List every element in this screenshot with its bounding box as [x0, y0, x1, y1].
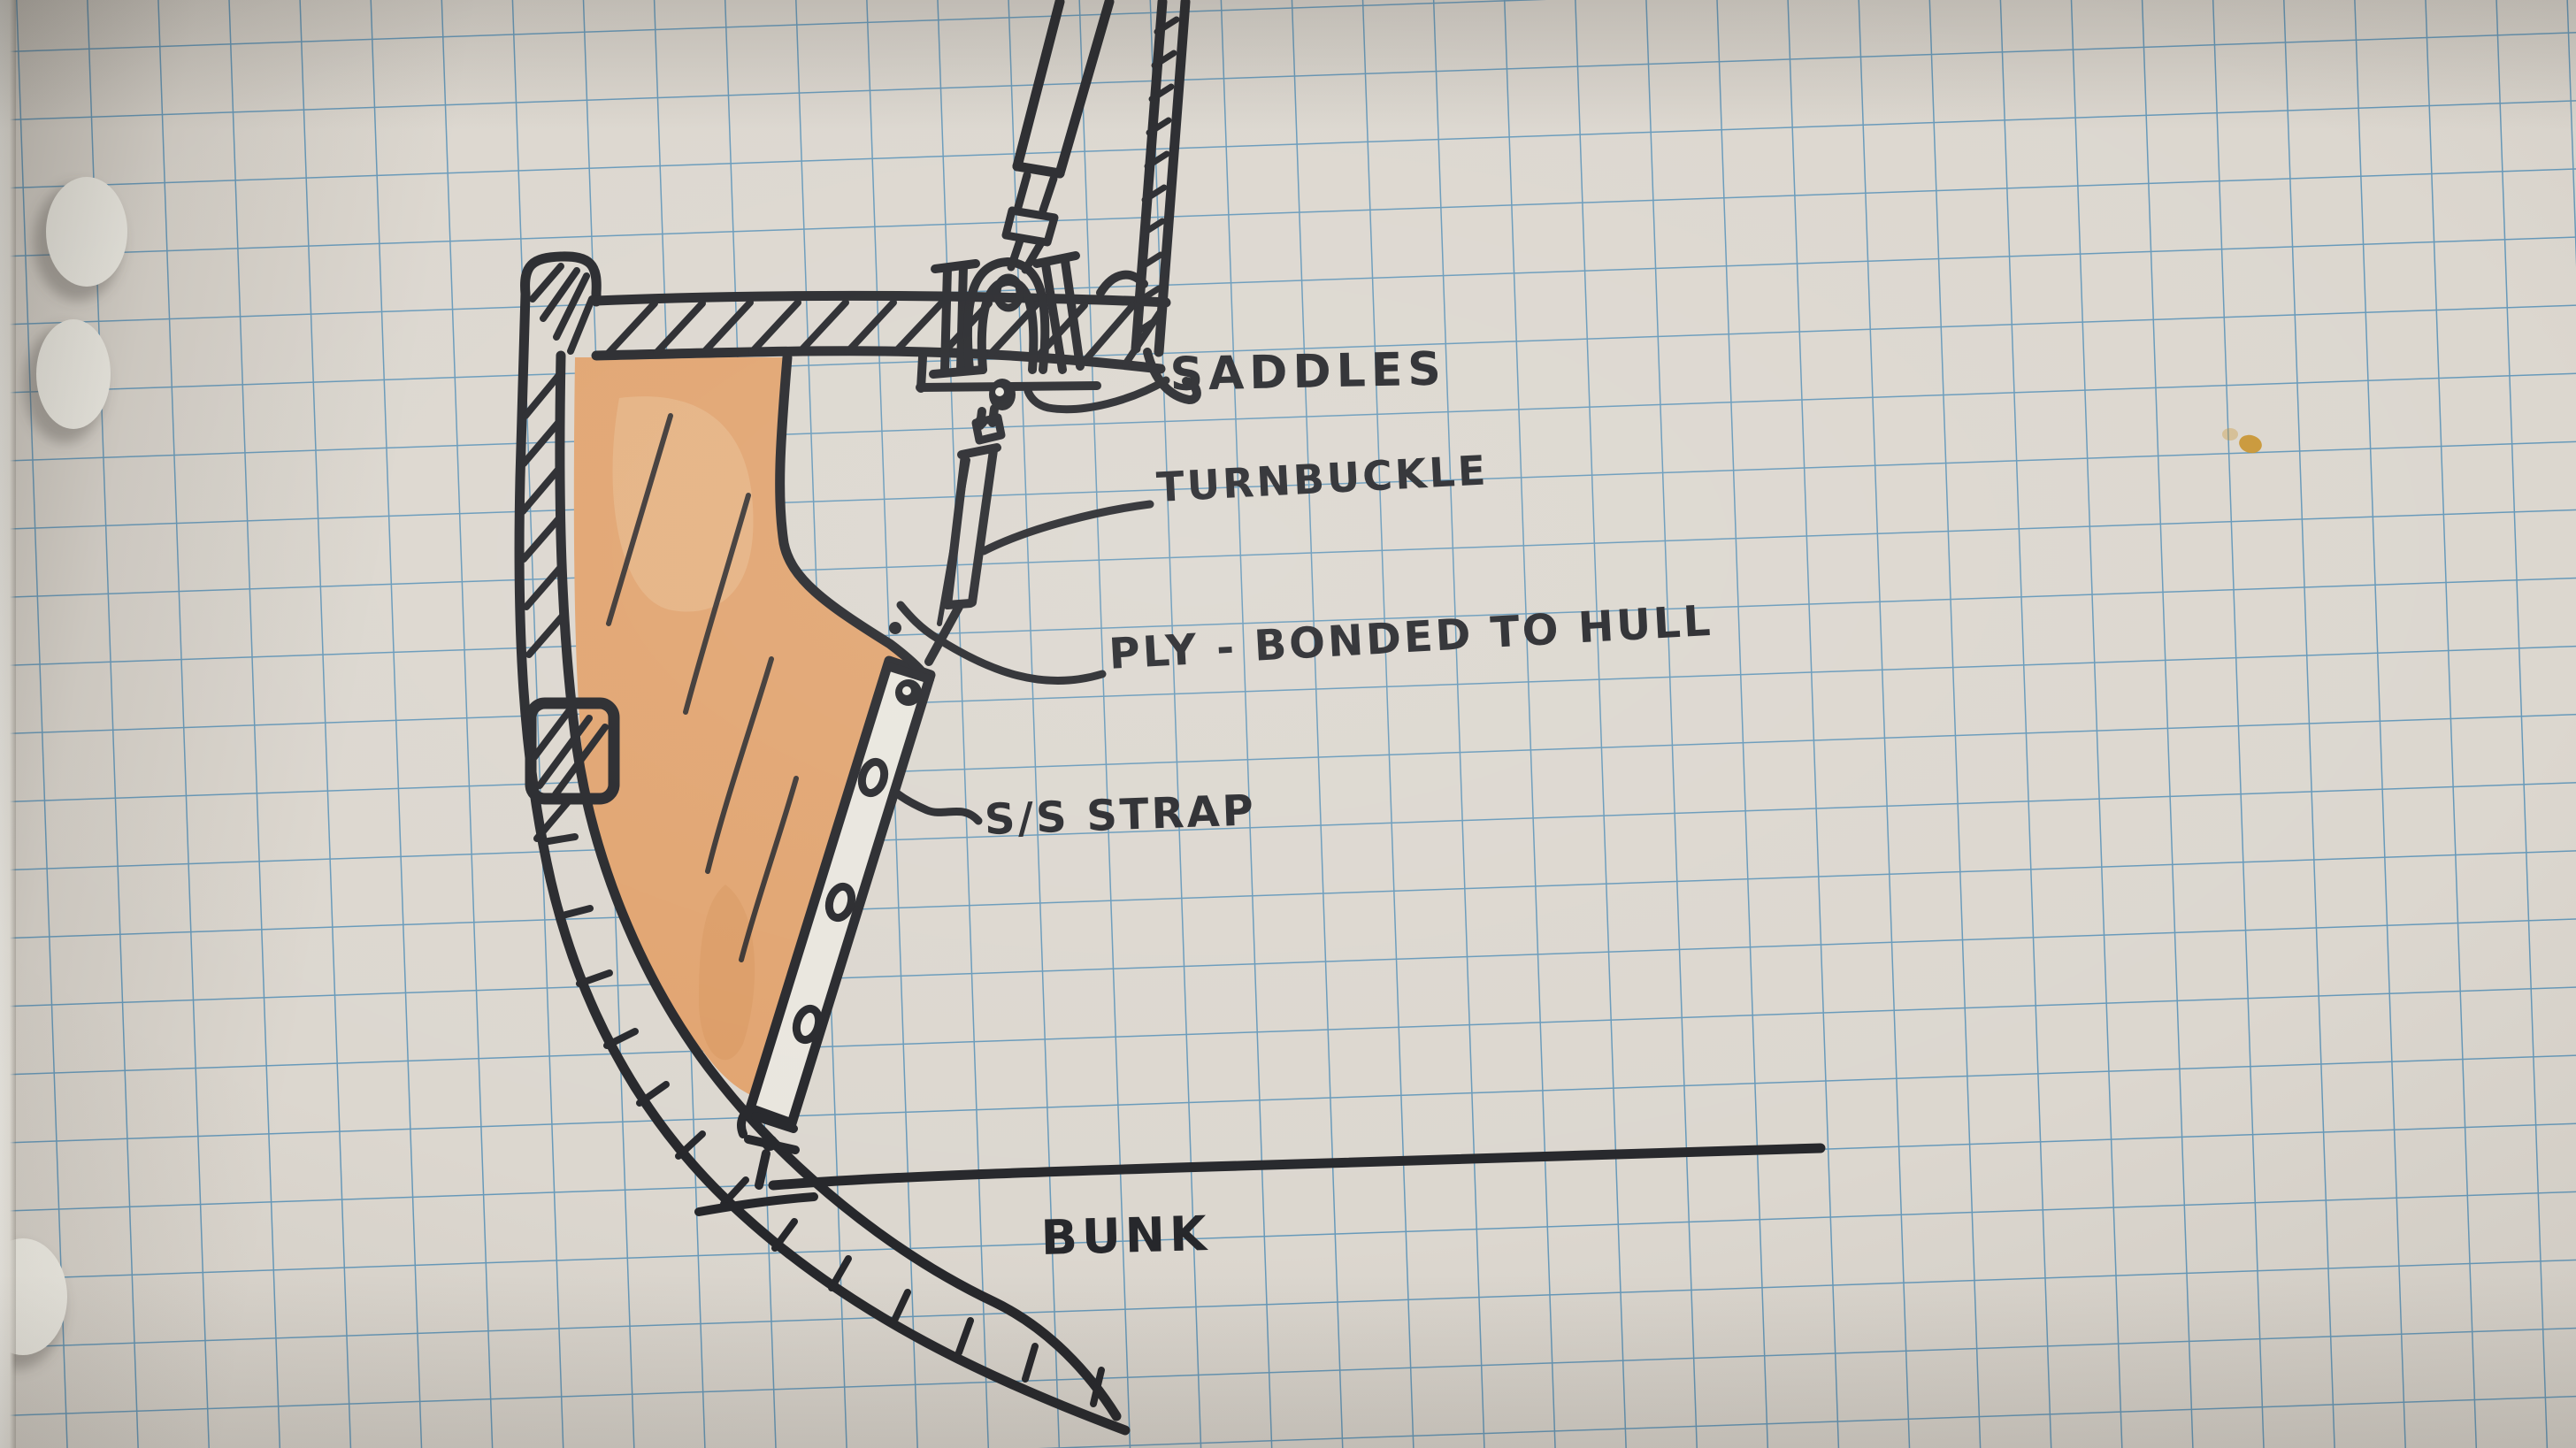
- label-ss-strap: S/S STRAP: [984, 785, 1257, 845]
- sketch-drawing: [0, 0, 2576, 1448]
- label-saddles: SADDLES: [1169, 342, 1446, 402]
- notebook-photo: SADDLES TURNBUCKLE PLY - BONDED TO HULL …: [0, 0, 2576, 1448]
- label-bunk: BUNK: [1040, 1206, 1212, 1266]
- paper-left-edge: [0, 0, 16, 1448]
- grid-layer: [0, 0, 2576, 1448]
